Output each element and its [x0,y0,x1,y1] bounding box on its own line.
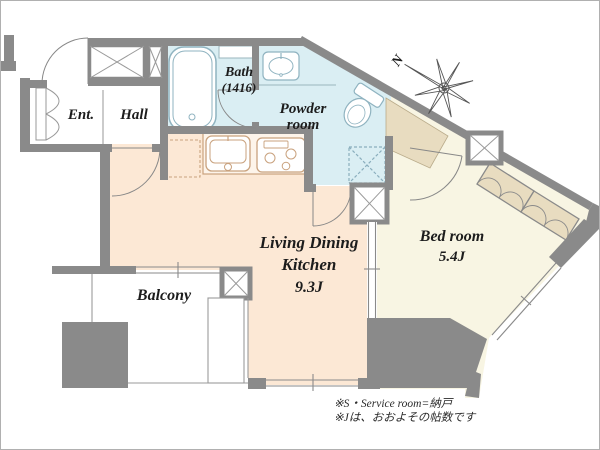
shoe-cabinet-icon [36,88,59,140]
room-label-entrance: Ent. [67,107,94,123]
room-label-bath: Bath [224,65,253,80]
room-size-bath: (1416) [222,80,257,95]
floorplan-canvas: N Ent. Hall Bath (1416) Powder room Livi… [0,0,600,450]
room-size-ldk: 9.3J [295,279,324,296]
footnote-jo-size: ※Jは、おおよその帖数です [334,411,477,424]
room-label-bedroom: Bed room [419,228,484,245]
room-label-balcony: Balcony [136,287,192,304]
kitchen-sink-icon [206,136,250,171]
washbasin-icon [263,52,299,80]
footnote-service-room: ※S・Service room=納戸 [334,397,454,410]
room-label-powder-1: Powder [280,101,327,117]
room-size-bedroom: 5.4J [439,249,466,265]
bath-shelf [219,46,257,58]
bathtub-icon [169,47,216,131]
room-label-ldk-1: Living Dining [259,233,359,252]
entrance-door [42,38,88,84]
room-label-hall: Hall [119,107,148,123]
stove-icon [257,138,305,172]
room-label-powder-2: room [287,117,320,133]
floorplan-svg: N Ent. Hall Bath (1416) Powder room Livi… [0,0,600,450]
room-label-ldk-2: Kitchen [281,255,337,274]
compass-north-label: N [389,52,408,70]
